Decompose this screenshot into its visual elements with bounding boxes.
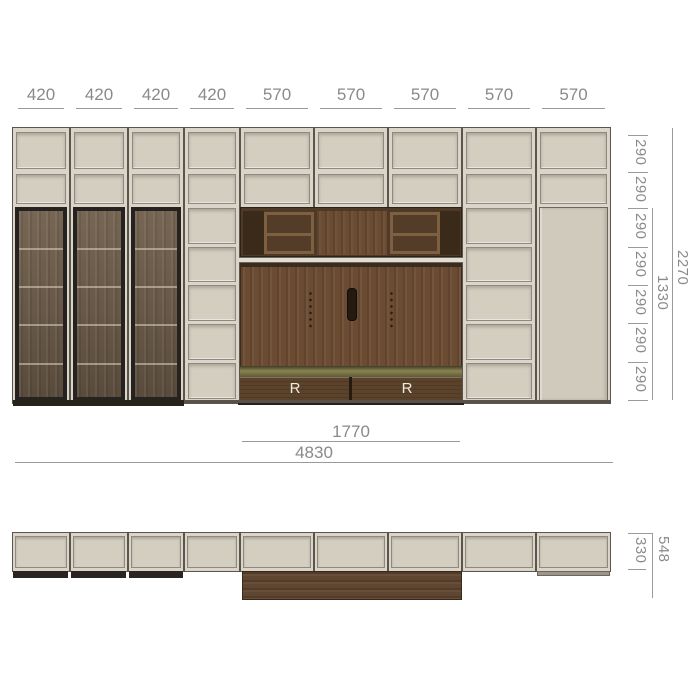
dim-tick bbox=[628, 172, 648, 173]
top-box bbox=[318, 132, 384, 169]
dim-290-4: 290 bbox=[632, 251, 649, 278]
dim-290-7: 290 bbox=[632, 366, 649, 393]
hutch-slot bbox=[243, 211, 264, 255]
plan-column-3 bbox=[128, 532, 184, 572]
tv-back-panel bbox=[240, 267, 462, 366]
shelf-cell bbox=[188, 285, 236, 321]
cabinet-door bbox=[539, 207, 608, 401]
dim-1330-line bbox=[652, 208, 653, 400]
dim-tick bbox=[628, 135, 648, 136]
plan-column-6 bbox=[314, 532, 388, 572]
dim-1770-line bbox=[242, 441, 460, 442]
dim-290-5: 290 bbox=[632, 289, 649, 316]
shelf-cell bbox=[188, 363, 236, 399]
dim-top-5: 570 bbox=[240, 86, 314, 104]
dim-tick bbox=[628, 323, 648, 324]
drawer-row: R R bbox=[240, 377, 462, 401]
dim-top-line-7 bbox=[394, 108, 456, 109]
top-box bbox=[392, 132, 458, 169]
dim-top-3: 420 bbox=[128, 86, 184, 104]
top-box bbox=[74, 132, 124, 169]
glass-pane bbox=[135, 211, 177, 397]
plan-column-4 bbox=[184, 532, 240, 572]
dim-top-line-3 bbox=[134, 108, 178, 109]
led-strip bbox=[240, 366, 462, 377]
dim-4830-line bbox=[15, 462, 613, 463]
cable-slot bbox=[347, 288, 357, 321]
dim-tick bbox=[628, 362, 648, 363]
dim-1770: 1770 bbox=[242, 423, 460, 441]
dim-top-line-4 bbox=[190, 108, 234, 109]
dim-2270: 2270 bbox=[674, 250, 691, 285]
dim-top-4: 420 bbox=[184, 86, 240, 104]
wall-unit-technical-drawing: 420 420 420 420 570 570 570 570 570 bbox=[0, 0, 700, 700]
top-box bbox=[540, 132, 607, 169]
dim-top-9: 570 bbox=[536, 86, 611, 104]
plinth-glass bbox=[13, 400, 184, 406]
dim-tick bbox=[628, 533, 653, 534]
hutch-shelf bbox=[240, 207, 462, 257]
dim-548: 548 bbox=[655, 536, 672, 563]
hutch-box-left bbox=[264, 212, 314, 254]
top-box bbox=[244, 174, 310, 204]
top-box bbox=[188, 132, 236, 169]
dim-290-3: 290 bbox=[632, 213, 649, 240]
top-box bbox=[188, 174, 236, 204]
top-box bbox=[74, 174, 124, 204]
column-4 bbox=[184, 127, 240, 404]
top-box bbox=[318, 174, 384, 204]
shelf-cell bbox=[466, 324, 532, 360]
hutch-box-right bbox=[390, 212, 440, 254]
dim-290-1: 290 bbox=[632, 139, 649, 166]
dim-top-line-8 bbox=[468, 108, 530, 109]
dim-tick bbox=[628, 208, 648, 209]
column-3 bbox=[128, 127, 184, 404]
dim-tick bbox=[628, 569, 646, 570]
dim-top-6: 570 bbox=[314, 86, 388, 104]
column-9 bbox=[536, 127, 611, 404]
shelf-cell bbox=[188, 208, 236, 244]
column-8 bbox=[462, 127, 536, 404]
plan-column-1 bbox=[12, 532, 70, 572]
top-box bbox=[244, 132, 310, 169]
dim-330: 330 bbox=[632, 537, 649, 564]
hutch-slot bbox=[440, 211, 460, 255]
shelf-cell bbox=[188, 247, 236, 282]
top-box bbox=[132, 174, 180, 204]
dim-1330: 1330 bbox=[654, 275, 671, 310]
top-box bbox=[392, 174, 458, 204]
glass-door-2 bbox=[73, 207, 125, 401]
dim-top-line-9 bbox=[542, 108, 605, 109]
top-box bbox=[16, 174, 66, 204]
column-2 bbox=[70, 127, 128, 404]
dim-290-6: 290 bbox=[632, 327, 649, 354]
dim-top-line-6 bbox=[320, 108, 382, 109]
shelf-cell bbox=[466, 247, 532, 282]
plan-column-2 bbox=[70, 532, 128, 572]
plan-glass-front-2 bbox=[71, 571, 126, 578]
column-1 bbox=[12, 127, 70, 404]
shelf-cell bbox=[466, 285, 532, 321]
hutch-open-center bbox=[317, 211, 387, 255]
plan-column-8 bbox=[462, 532, 536, 572]
shelf-cell bbox=[188, 324, 236, 360]
top-box bbox=[132, 132, 180, 169]
dim-top-line-5 bbox=[246, 108, 308, 109]
plan-tv-protrusion bbox=[242, 571, 462, 600]
shelf-cell bbox=[466, 208, 532, 244]
shelf-cell bbox=[466, 363, 532, 399]
plan-column-9 bbox=[536, 532, 611, 572]
tv-unit: R R bbox=[240, 207, 462, 404]
top-box bbox=[540, 174, 607, 204]
glass-door-3 bbox=[131, 207, 181, 401]
dim-top-1: 420 bbox=[12, 86, 70, 104]
dim-2270-line bbox=[672, 128, 673, 400]
dim-top-line-2 bbox=[76, 108, 122, 109]
dim-548-line bbox=[652, 533, 653, 598]
dim-290-2: 290 bbox=[632, 176, 649, 203]
dim-top-8: 570 bbox=[462, 86, 536, 104]
dim-top-7: 570 bbox=[388, 86, 462, 104]
drawer-label-left: R bbox=[240, 380, 350, 397]
dim-top-2: 420 bbox=[70, 86, 128, 104]
pin-holes-left bbox=[309, 291, 312, 328]
dim-tick bbox=[628, 285, 648, 286]
plan-glass-front-3 bbox=[129, 571, 183, 578]
plan-column-7 bbox=[388, 532, 462, 572]
glass-pane bbox=[19, 211, 63, 397]
dim-tick bbox=[628, 247, 648, 248]
glass-pane bbox=[77, 211, 121, 397]
plan-door-front bbox=[537, 571, 610, 576]
glass-door-1 bbox=[15, 207, 67, 401]
top-box bbox=[16, 132, 66, 169]
dim-top-line-1 bbox=[18, 108, 64, 109]
dim-tick bbox=[628, 400, 648, 401]
plan-glass-front-1 bbox=[13, 571, 68, 578]
top-box bbox=[466, 132, 532, 169]
top-box bbox=[466, 174, 532, 204]
pin-holes-right bbox=[390, 291, 393, 328]
drawer-label-right: R bbox=[352, 380, 462, 397]
dim-4830: 4830 bbox=[15, 444, 613, 462]
plan-column-5 bbox=[240, 532, 314, 572]
